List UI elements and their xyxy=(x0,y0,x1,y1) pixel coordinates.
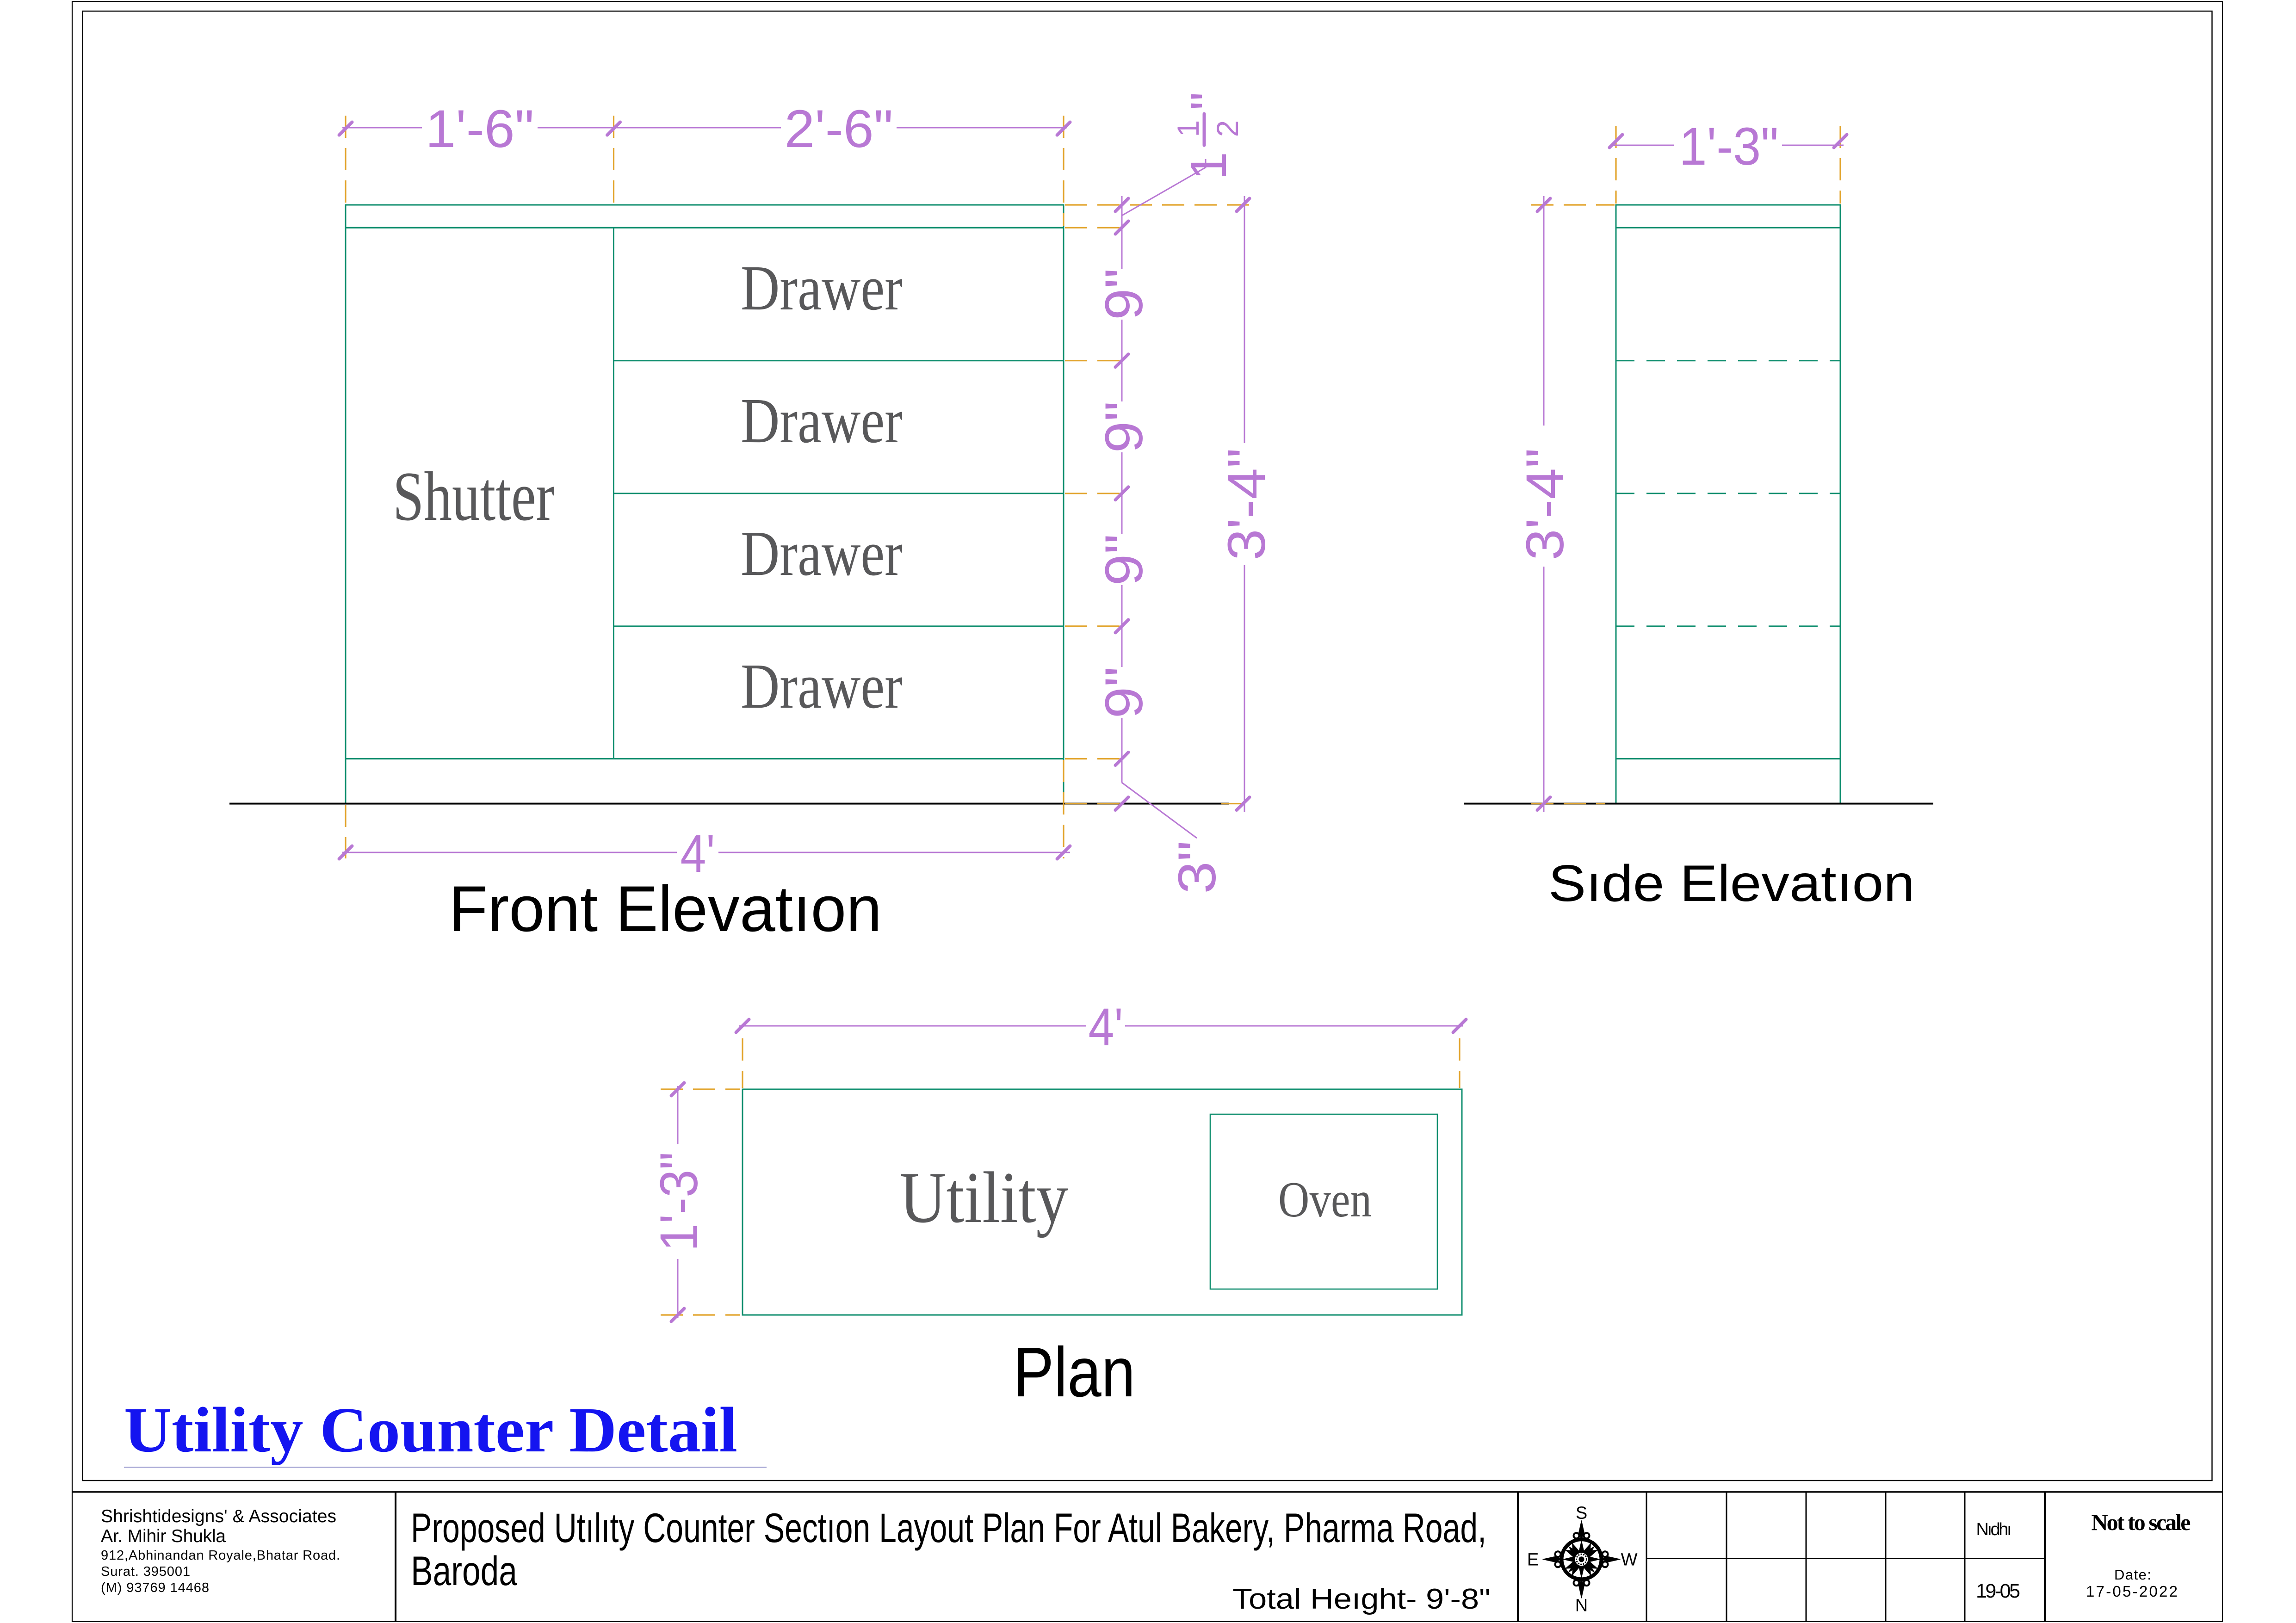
svg-text:Sıde Elevatıon: Sıde Elevatıon xyxy=(1548,855,1915,912)
svg-text:": " xyxy=(1180,92,1237,110)
svg-text:9": 9" xyxy=(1095,401,1154,453)
svg-text:Front Elevatıon: Front Elevatıon xyxy=(449,872,882,945)
svg-text:Drawer: Drawer xyxy=(741,253,903,324)
svg-text:Ar. Mihir Shukla: Ar. Mihir Shukla xyxy=(101,1526,226,1546)
svg-text:4': 4' xyxy=(1089,998,1123,1057)
svg-text:N: N xyxy=(1575,1596,1588,1615)
svg-text:3'-4": 3'-4" xyxy=(1217,448,1276,561)
svg-text:912,Abhinandan Royale,Bhatar R: 912,Abhinandan Royale,Bhatar Road. xyxy=(101,1548,340,1563)
svg-text:Total Heıght- 9'-8": Total Heıght- 9'-8" xyxy=(1232,1583,1491,1615)
svg-text:Proposed Utılıty Counter Sectı: Proposed Utılıty Counter Sectıon Layout … xyxy=(411,1505,1486,1551)
svg-text:Utility: Utility xyxy=(900,1157,1069,1238)
svg-text:Not to scale: Not to scale xyxy=(2092,1509,2191,1535)
svg-text:2: 2 xyxy=(1210,120,1244,137)
svg-text:9": 9" xyxy=(1095,268,1154,320)
svg-text:Plan: Plan xyxy=(1013,1333,1135,1412)
svg-text:Date:: Date: xyxy=(2114,1567,2151,1583)
svg-text:Shrishtidesigns' & Associates: Shrishtidesigns' & Associates xyxy=(101,1506,336,1526)
svg-text:S: S xyxy=(1576,1503,1587,1523)
svg-text:1'-3": 1'-3" xyxy=(650,1152,709,1252)
svg-text:3'-4": 3'-4" xyxy=(1516,448,1575,561)
svg-text:(M) 93769 14468: (M) 93769 14468 xyxy=(101,1580,209,1595)
svg-text:1: 1 xyxy=(1171,120,1205,137)
svg-text:1'-3": 1'-3" xyxy=(1679,117,1779,176)
svg-text:Drawer: Drawer xyxy=(741,518,903,589)
svg-text:1: 1 xyxy=(1180,152,1237,180)
svg-text:3": 3" xyxy=(1168,841,1227,894)
svg-text:Baroda: Baroda xyxy=(411,1548,517,1594)
svg-text:Oven: Oven xyxy=(1278,1172,1372,1228)
svg-text:W: W xyxy=(1621,1550,1638,1569)
svg-text:Drawer: Drawer xyxy=(741,651,903,722)
svg-text:2'-6": 2'-6" xyxy=(785,99,893,159)
svg-text:Surat. 395001: Surat. 395001 xyxy=(101,1564,190,1579)
svg-text:9": 9" xyxy=(1095,666,1154,718)
svg-text:1'-6": 1'-6" xyxy=(426,99,534,159)
svg-text:Drawer: Drawer xyxy=(741,385,903,457)
svg-text:Nıdhı: Nıdhı xyxy=(1976,1520,2012,1539)
svg-text:19-05: 19-05 xyxy=(1976,1580,2020,1602)
svg-text:Shutter: Shutter xyxy=(393,457,555,535)
svg-text:Utility Counter Detail: Utility Counter Detail xyxy=(124,1395,737,1466)
svg-text:9": 9" xyxy=(1095,534,1154,586)
svg-text:E: E xyxy=(1527,1550,1539,1569)
